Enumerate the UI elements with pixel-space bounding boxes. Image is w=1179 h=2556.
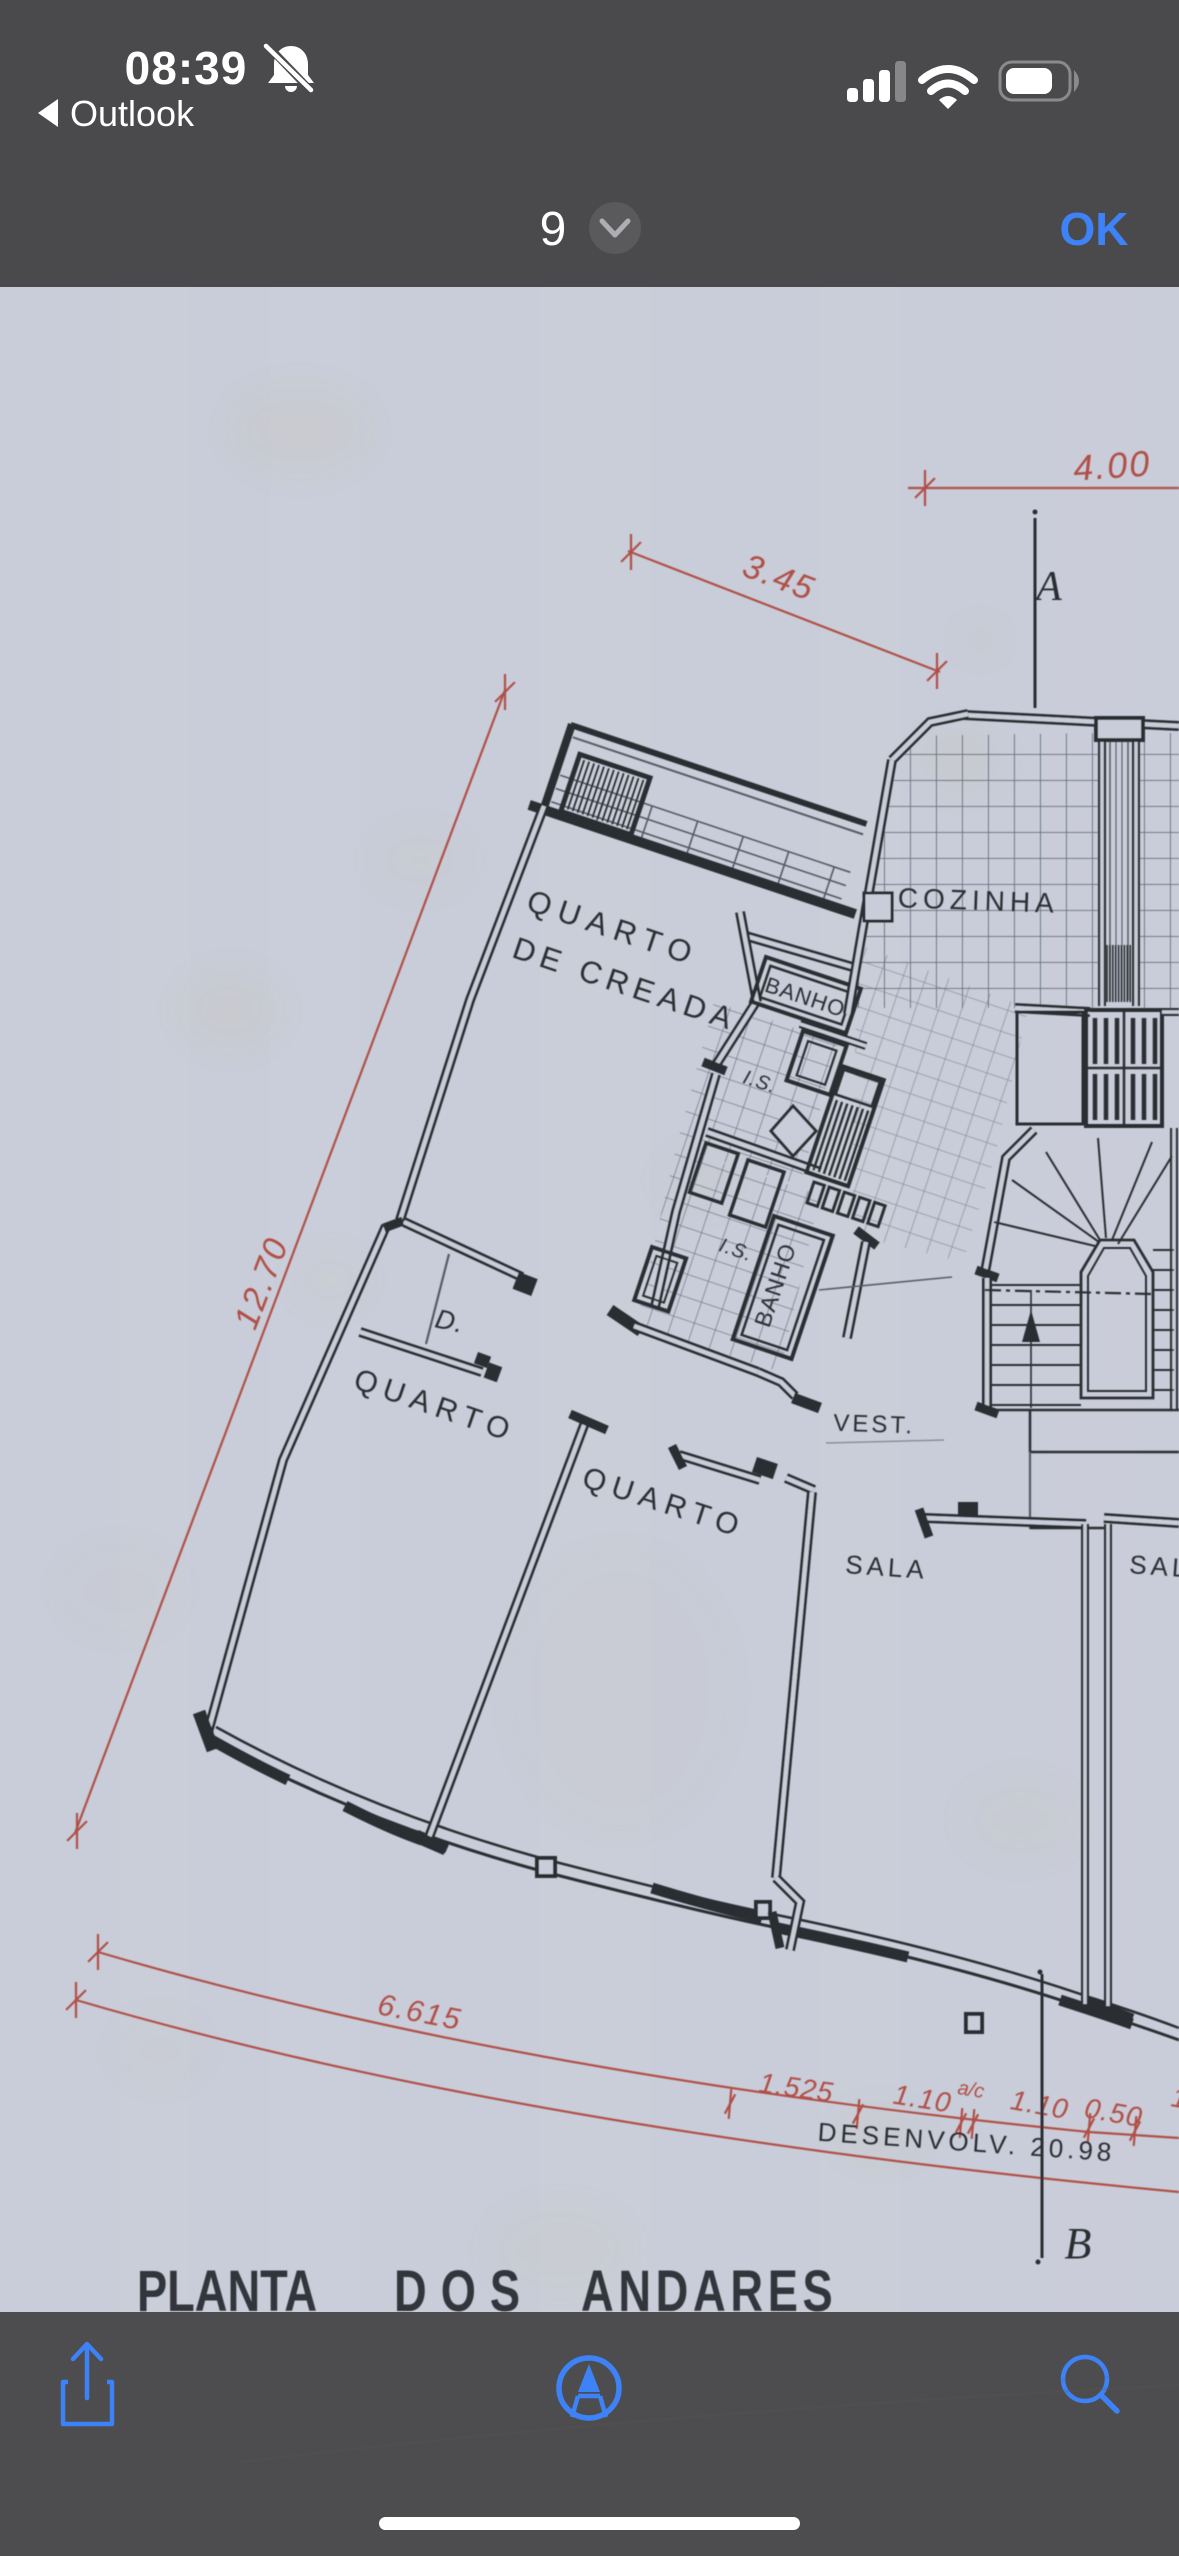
svg-text:SALA: SALA: [1128, 1549, 1179, 1585]
svg-text:COZINHA: COZINHA: [897, 882, 1059, 919]
svg-text:B: B: [1065, 2219, 1092, 2268]
svg-text:SALA: SALA: [844, 1549, 928, 1585]
svg-text:D.: D.: [433, 1304, 468, 1339]
svg-text:4.00: 4.00: [1072, 442, 1153, 488]
svg-text:Outlook: Outlook: [70, 93, 195, 134]
svg-text:A: A: [1033, 564, 1062, 610]
svg-text:OK: OK: [1060, 203, 1129, 255]
svg-text:9: 9: [540, 203, 567, 256]
svg-text:a/c: a/c: [956, 2077, 986, 2103]
svg-text:VEST.: VEST.: [833, 1410, 916, 1440]
svg-text:08:39: 08:39: [125, 42, 248, 94]
